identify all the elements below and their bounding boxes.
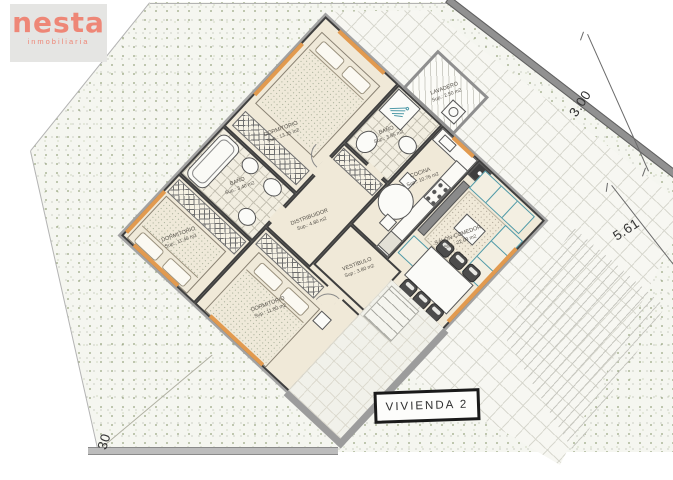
agency-logo: nesta inmobiliaria [10, 4, 107, 62]
boundary-line-top [150, 3, 453, 4]
dwelling-badge: VIVIENDA 2 [373, 388, 480, 424]
retaining-wall [88, 447, 338, 455]
dwelling-badge-label: VIVIENDA 2 [385, 399, 468, 414]
agency-logo-brand: nesta [10, 10, 107, 35]
floor-plan-canvas: 3.00 5.61 30 [0, 0, 673, 480]
dimension-tick [580, 32, 584, 41]
shower-spray-icon [385, 94, 413, 122]
